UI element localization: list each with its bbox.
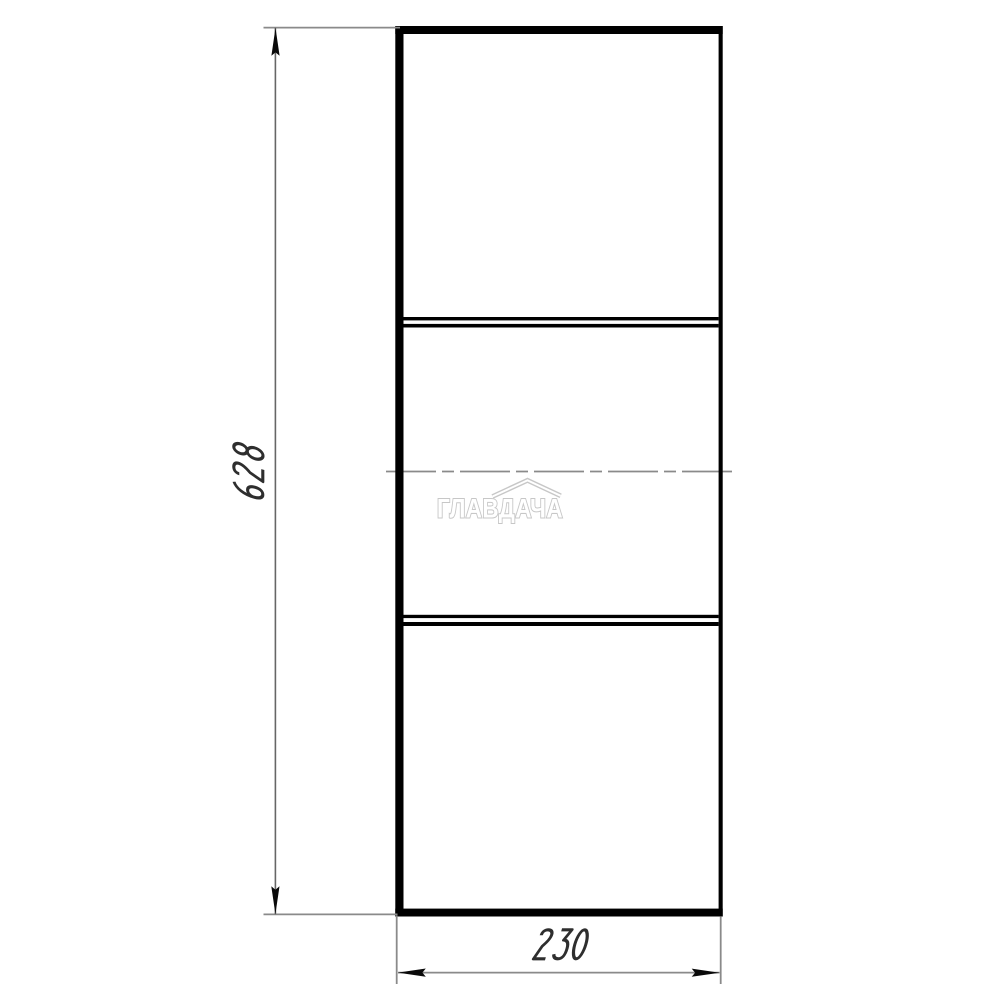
- svg-text:ГЛАВДАЧА: ГЛАВДАЧА: [437, 494, 563, 524]
